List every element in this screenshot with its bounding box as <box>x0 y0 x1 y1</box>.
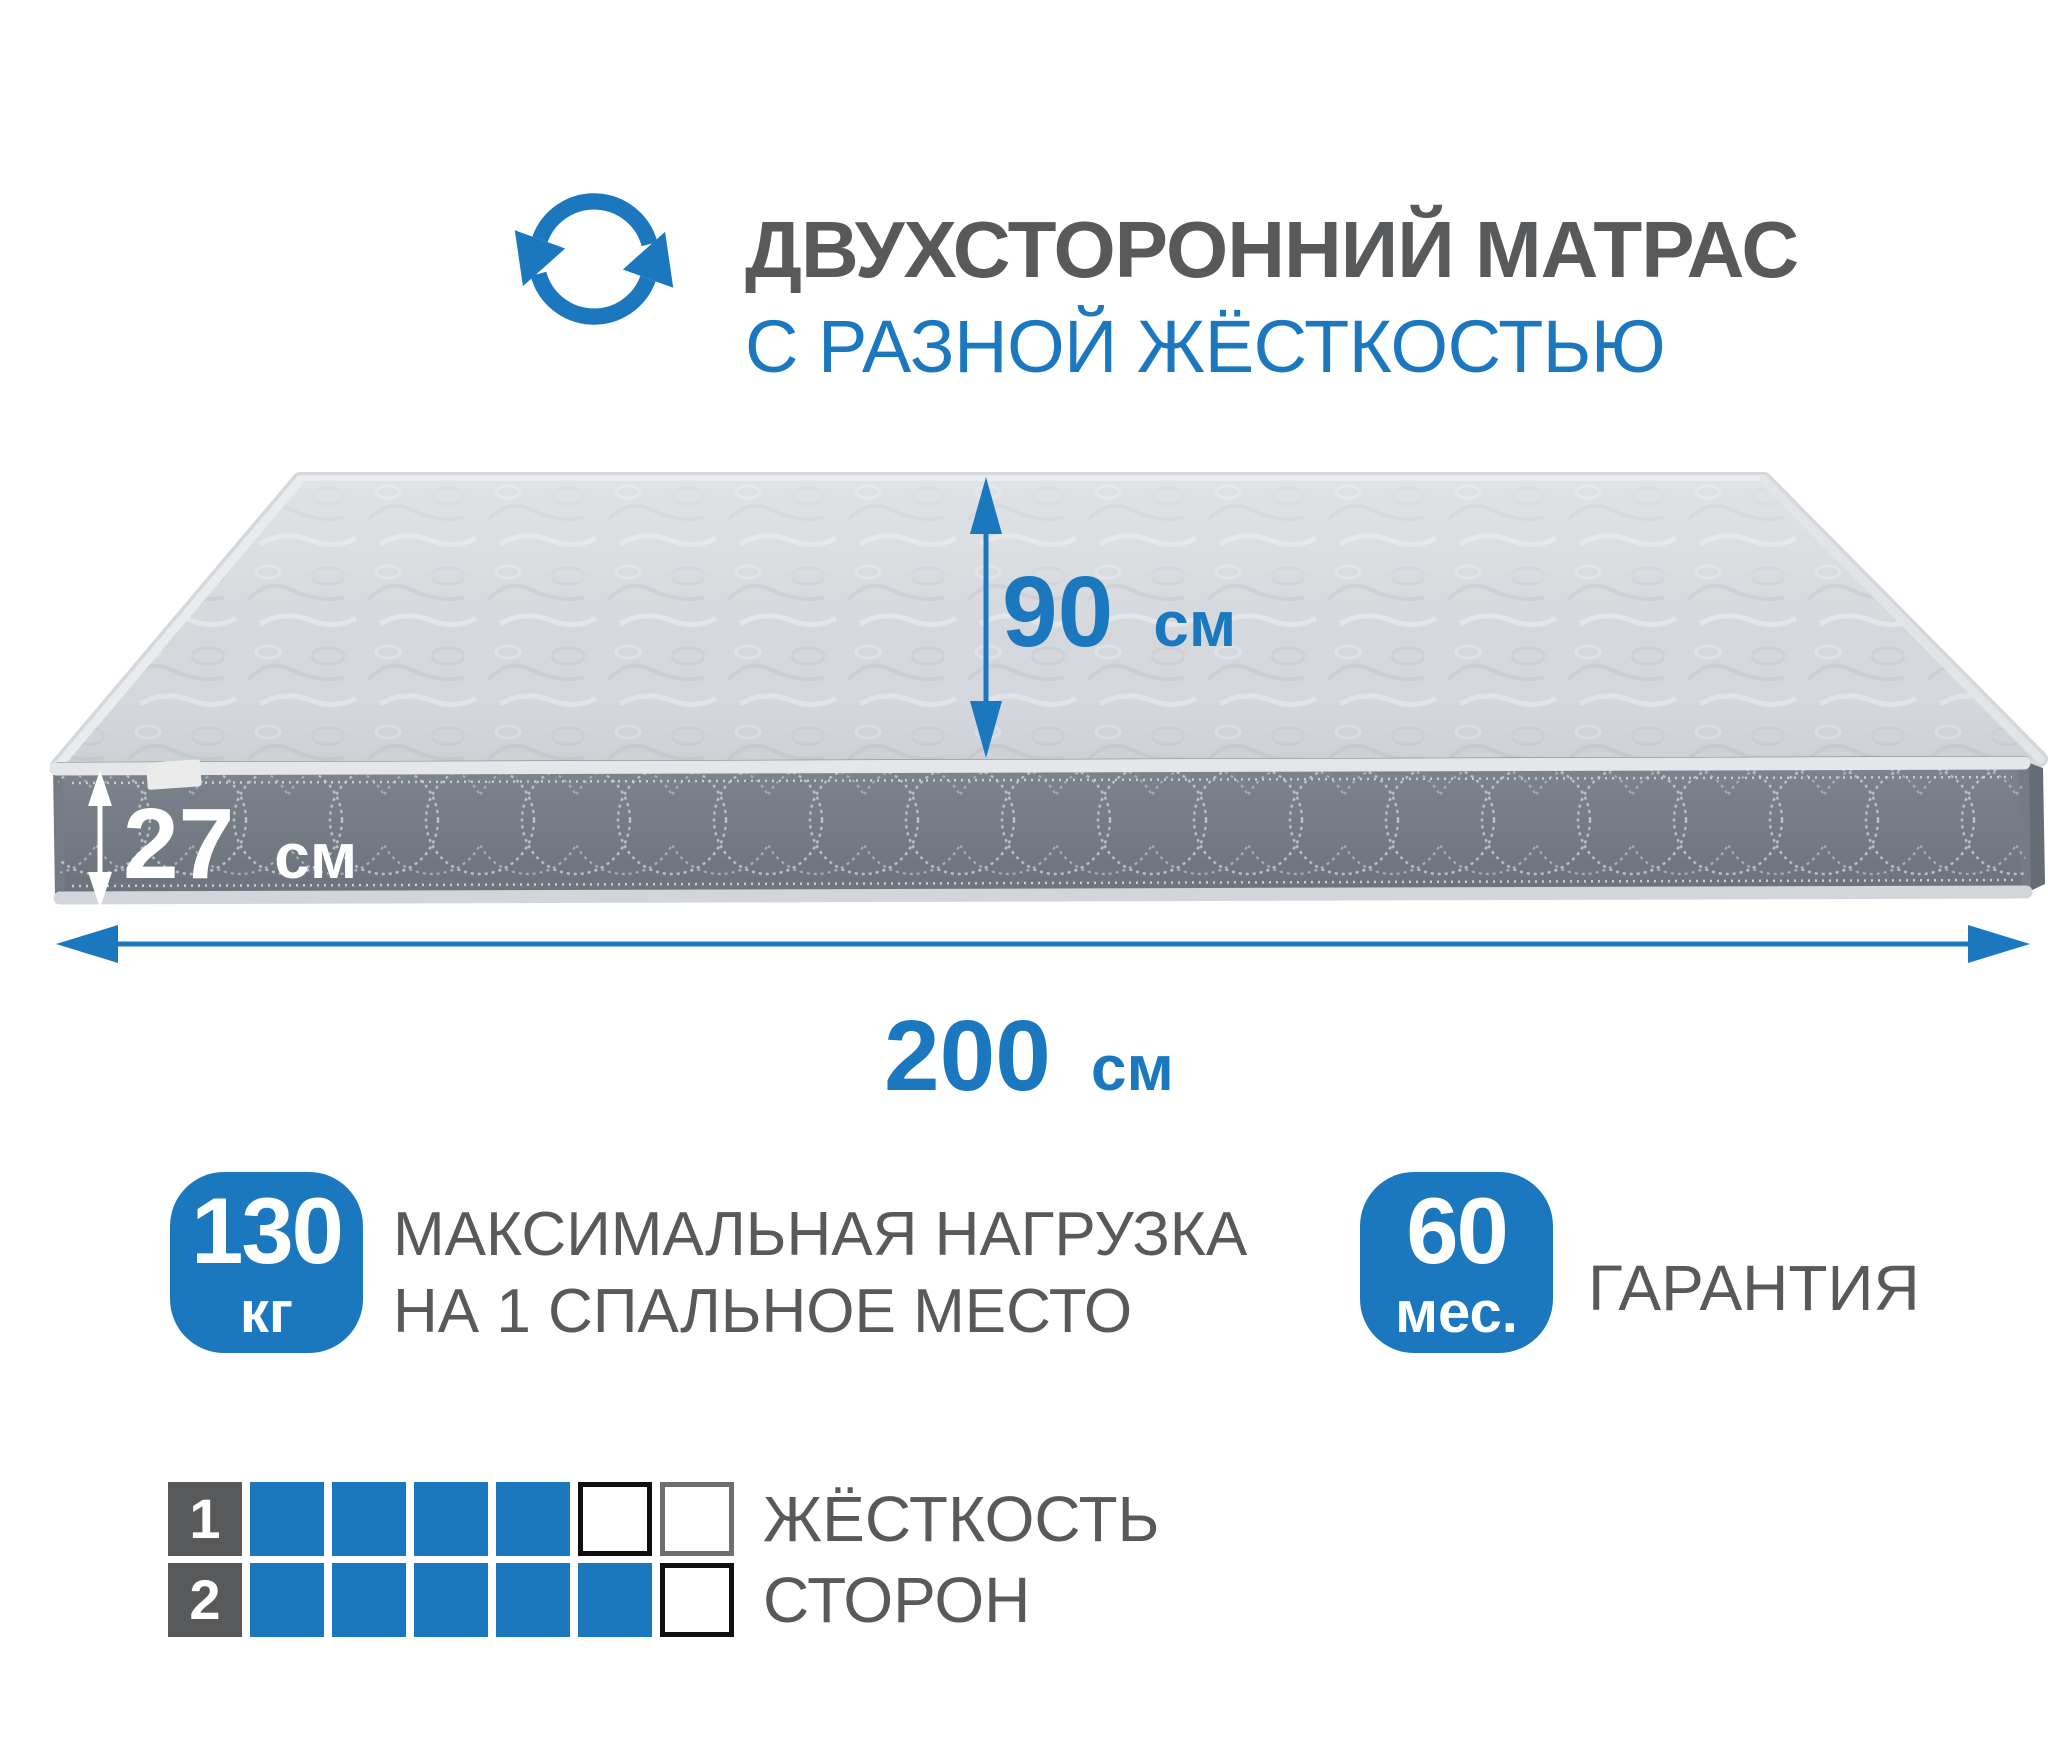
mattress-infographic: ДВУХСТОРОННИЙ МАТРАС С РАЗНОЙ ЖЁСТКОСТЬЮ <box>0 0 2048 1757</box>
firmness-cell-filled <box>414 1563 488 1637</box>
firmness-cell-filled <box>496 1482 570 1556</box>
firmness-cell-filled <box>250 1563 324 1637</box>
length-unit: см <box>1091 1036 1174 1100</box>
firmness-cell-filled <box>414 1482 488 1556</box>
width-unit: см <box>1153 592 1236 656</box>
thickness-dimension-label: 27 см <box>123 794 357 894</box>
thickness-unit: см <box>274 824 357 888</box>
thickness-value: 27 <box>123 794 234 894</box>
firmness-row-number: 1 <box>168 1482 242 1556</box>
mattress-top-piping <box>56 763 2024 769</box>
width-dimension-label: 90 см <box>1002 562 1236 662</box>
firmness-row-side2: 2 <box>168 1563 734 1637</box>
max-load-badge: 130 кг <box>170 1172 363 1353</box>
max-load-description: МАКСИМАЛЬНАЯ НАГРУЗКА НА 1 СПАЛЬНОЕ МЕСТ… <box>393 1196 1247 1350</box>
firmness-cell-empty-black <box>578 1482 652 1556</box>
firmness-cell-empty-gray <box>660 1482 734 1556</box>
firmness-cell-empty-black <box>660 1563 734 1637</box>
length-value: 200 <box>884 1006 1051 1106</box>
firmness-cell-filled <box>250 1482 324 1556</box>
width-value: 90 <box>1002 562 1113 662</box>
firmness-row-side1: 1 <box>168 1482 734 1556</box>
max-load-description-line1: МАКСИМАЛЬНАЯ НАГРУЗКА <box>393 1196 1247 1273</box>
firmness-label-line1: ЖЁСТКОСТЬ <box>763 1482 1160 1556</box>
warranty-value: 60 <box>1406 1184 1507 1278</box>
firmness-cell-filled <box>578 1563 652 1637</box>
firmness-label-line2: СТОРОН <box>763 1563 1030 1637</box>
firmness-cell-filled <box>332 1482 406 1556</box>
firmness-cell-filled <box>332 1563 406 1637</box>
warranty-unit: мес. <box>1395 1284 1518 1342</box>
warranty-label: ГАРАНТИЯ <box>1588 1256 1920 1320</box>
length-dimension-label: 200 см <box>884 1006 1174 1106</box>
max-load-description-line2: НА 1 СПАЛЬНОЕ МЕСТО <box>393 1273 1247 1350</box>
max-load-unit: кг <box>240 1284 293 1342</box>
firmness-row-number: 2 <box>168 1563 242 1637</box>
firmness-indicator: 1 2 ЖЁСТКОСТЬ СТОРОН <box>168 1482 734 1644</box>
firmness-cell-filled <box>496 1563 570 1637</box>
max-load-value: 130 <box>191 1184 342 1278</box>
length-arrow <box>56 925 2030 963</box>
warranty-badge: 60 мес. <box>1360 1172 1553 1353</box>
mattress-label-tag <box>146 759 202 790</box>
